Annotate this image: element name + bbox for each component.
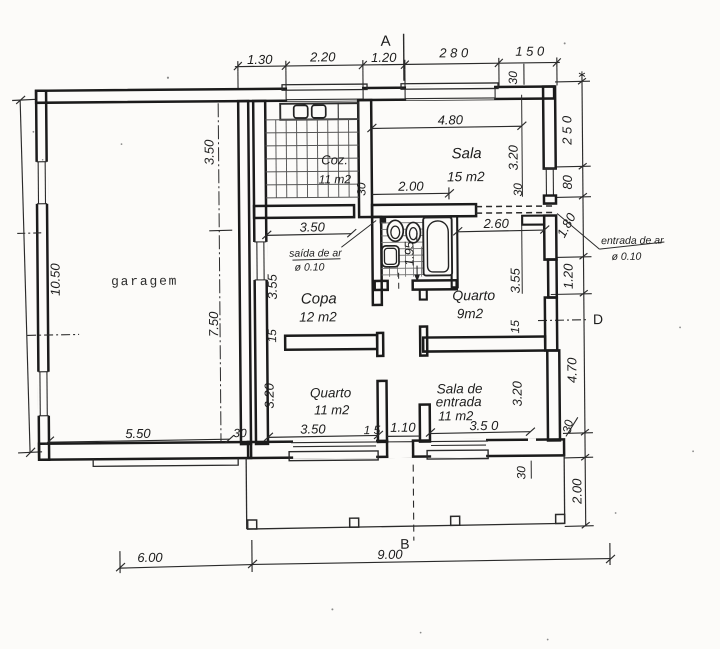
svg-text:11 m2: 11 m2 (319, 172, 352, 186)
svg-text:1.30: 1.30 (247, 52, 273, 67)
svg-text:4.80: 4.80 (438, 112, 464, 127)
svg-text:B: B (400, 536, 409, 552)
svg-text:6.00: 6.00 (137, 550, 163, 565)
svg-text:entrada de ar: entrada de ar (601, 235, 664, 248)
svg-text:3.55: 3.55 (508, 267, 523, 293)
svg-text:9m2: 9m2 (457, 306, 484, 321)
svg-text:1.20: 1.20 (371, 50, 397, 65)
svg-text:1 5: 1 5 (364, 423, 381, 437)
svg-text:3.50: 3.50 (201, 139, 216, 165)
svg-text:3.5 0: 3.5 0 (469, 418, 499, 433)
svg-text:12 m2: 12 m2 (299, 309, 337, 324)
svg-text:30: 30 (511, 183, 525, 197)
svg-text:80: 80 (560, 174, 575, 189)
svg-text:15: 15 (265, 329, 279, 343)
svg-text:D: D (593, 311, 603, 327)
svg-text:30: 30 (514, 466, 528, 480)
svg-text:15 m2: 15 m2 (447, 169, 485, 184)
svg-text:2.00: 2.00 (569, 478, 584, 505)
svg-text:3.20: 3.20 (510, 380, 525, 406)
svg-text:3.20: 3.20 (506, 144, 521, 170)
svg-text:1.20: 1.20 (561, 263, 576, 289)
svg-text:A: A (381, 33, 391, 50)
svg-text:Quarto: Quarto (452, 287, 495, 303)
svg-text:3.20: 3.20 (262, 382, 277, 408)
svg-text:∗: ∗ (577, 69, 586, 81)
svg-text:5.50: 5.50 (125, 426, 151, 441)
svg-text:1.95: 1.95 (402, 241, 416, 265)
svg-text:30: 30 (233, 426, 247, 440)
svg-text:ø 0.10: ø 0.10 (295, 261, 325, 273)
svg-text:2.60: 2.60 (482, 216, 509, 231)
svg-text:3.55: 3.55 (265, 273, 280, 299)
svg-text:2 8 0: 2 8 0 (438, 45, 469, 60)
svg-text:ø 0.10: ø 0.10 (612, 251, 642, 263)
svg-text:15: 15 (508, 320, 522, 334)
svg-text:1.10: 1.10 (390, 420, 416, 435)
svg-text:2.00: 2.00 (397, 179, 424, 194)
svg-text:30: 30 (354, 182, 368, 196)
svg-text:3.50: 3.50 (299, 219, 325, 234)
svg-text:entrada: entrada (436, 394, 482, 409)
svg-text:7.50: 7.50 (206, 311, 221, 337)
svg-text:saída de ar: saída de ar (289, 247, 342, 259)
svg-text:Copa: Copa (301, 290, 337, 307)
svg-text:Sala: Sala (452, 145, 482, 162)
svg-text:10.50: 10.50 (47, 263, 62, 296)
svg-text:3.50: 3.50 (300, 421, 326, 436)
svg-text:2 5 0: 2 5 0 (559, 115, 574, 146)
svg-text:11 m2: 11 m2 (314, 402, 350, 417)
svg-text:1 5 0: 1 5 0 (515, 44, 545, 59)
svg-text:30: 30 (506, 71, 520, 85)
svg-text:2.20: 2.20 (309, 49, 336, 64)
svg-text:Coz.: Coz. (321, 152, 348, 167)
svg-text:Quarto: Quarto (310, 385, 352, 400)
svg-text:4.70: 4.70 (564, 357, 579, 383)
svg-text:garagem: garagem (111, 274, 178, 290)
